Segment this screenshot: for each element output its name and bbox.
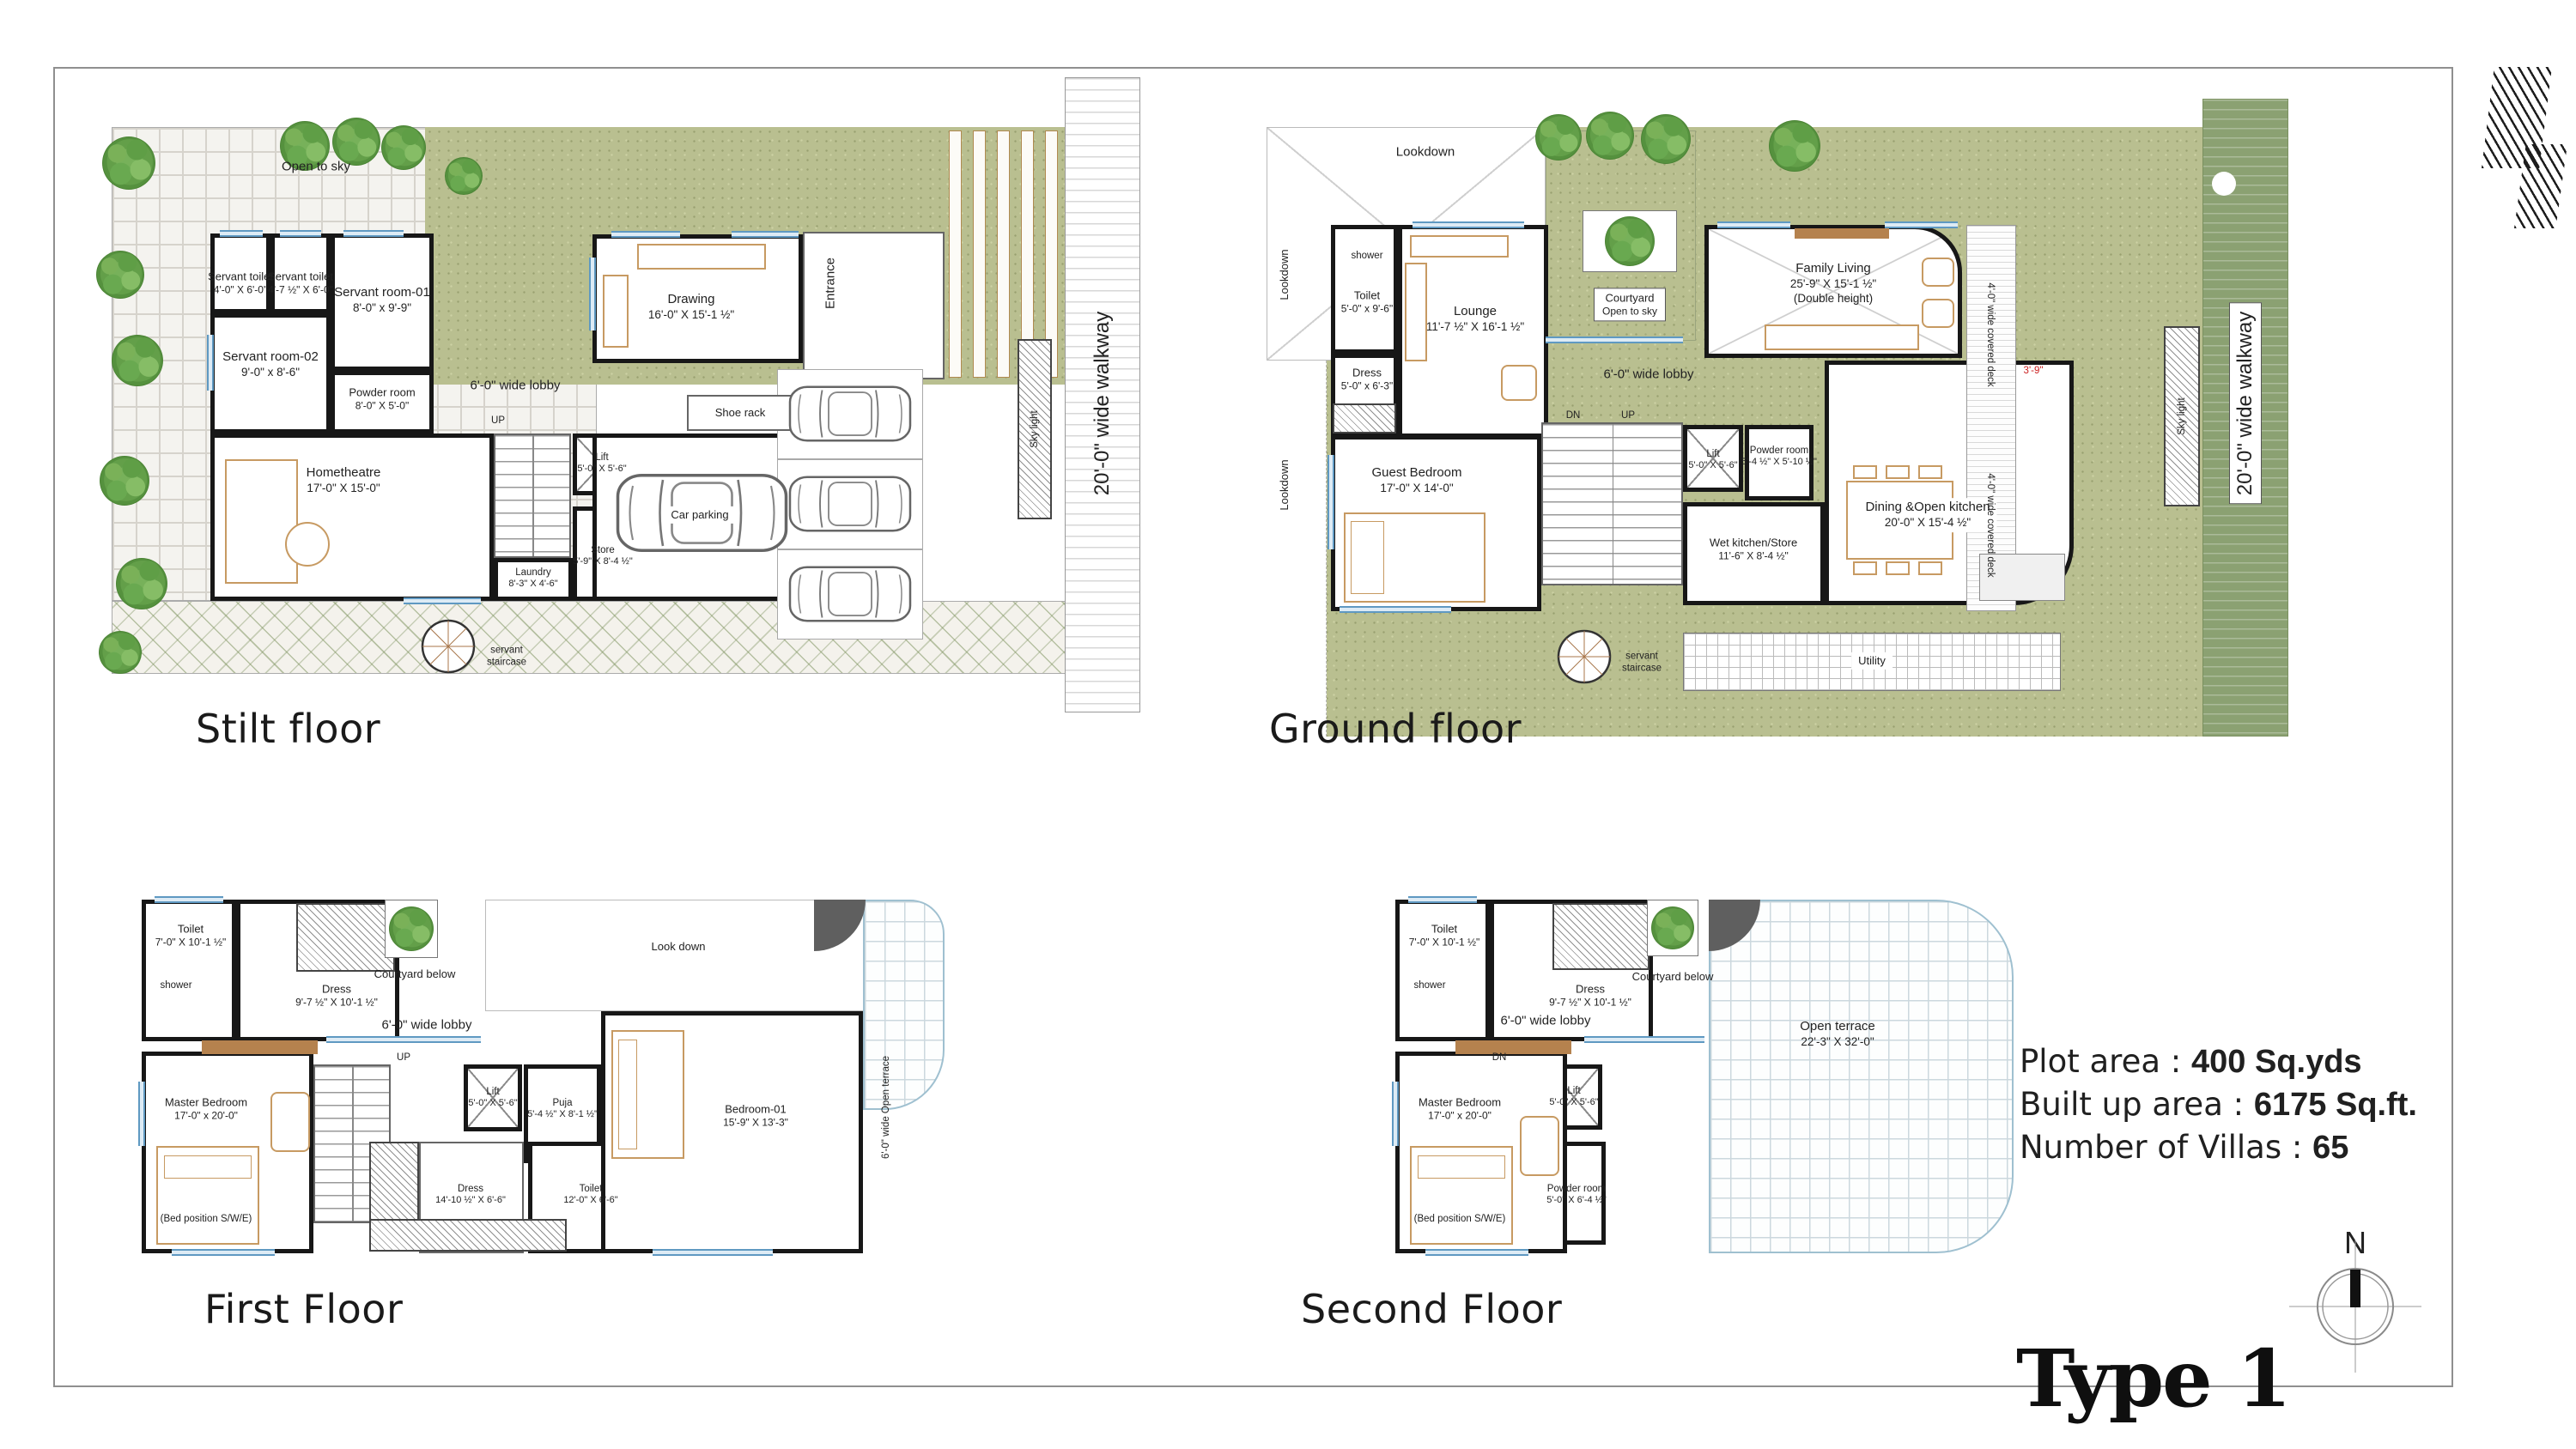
first-floor-title: First Floor	[204, 1286, 403, 1332]
covered-deck-label: 4'-0" wide covered deck	[1984, 473, 1996, 577]
open-terrace-side-label: 6'-0" wide Open terrace	[880, 1056, 892, 1159]
lookdown-label: Lookdown	[1278, 459, 1291, 510]
walkway-label: 20'-0" wide walkway	[2229, 303, 2262, 505]
tree-icon	[96, 251, 144, 299]
compass-icon	[2282, 1234, 2428, 1379]
bed-position-label: (Bed position S/W/E)	[1414, 1213, 1506, 1225]
room-label: Powder room8'-0" X 5'-0"	[349, 385, 415, 412]
lawn-light-dot	[2212, 172, 2236, 196]
stilt-open-to-sky-label: Open to sky	[282, 160, 350, 176]
plot-area-line: Plot area : 400 Sq.yds	[2020, 1040, 2417, 1083]
walkway-label: 20'-0" wide walkway	[1090, 312, 1115, 496]
chair	[1918, 465, 1942, 479]
dn-label: DN	[1492, 1052, 1507, 1064]
first-open-terrace	[863, 900, 945, 1110]
shoe-rack-label: Shoe rack	[715, 406, 766, 420]
window	[589, 258, 596, 330]
first-wardrobe3	[369, 1219, 567, 1252]
window	[207, 335, 214, 391]
lobby-label: 6'-0" wide lobby	[1501, 1014, 1591, 1030]
second-wardrobe	[1552, 903, 1649, 970]
up-label: UP	[397, 1052, 410, 1064]
room-label: Powder room5'-4 ½" X 5'-10 ½"	[1741, 445, 1817, 469]
entrance-label: Entrance	[823, 258, 840, 309]
room-label: Dress9'-7 ½" X 10'-1 ½"	[295, 982, 378, 1009]
builtup-area-value: 6175 Sq.ft.	[2254, 1087, 2417, 1123]
tree-icon	[445, 157, 483, 195]
tree-icon	[332, 118, 380, 166]
room-label: Toilet12'-0" X 6'-6"	[563, 1183, 617, 1207]
second-open-terrace	[1709, 900, 2014, 1253]
car-icon	[786, 380, 914, 447]
room-label: Hometheatre17'-0" X 15'-0"	[307, 465, 381, 496]
sofa	[1765, 324, 1919, 350]
room-label: Dress9'-7 ½" X 10'-1 ½"	[1549, 982, 1631, 1009]
armchair	[1922, 299, 1954, 328]
window	[1340, 606, 1451, 613]
window	[220, 230, 263, 237]
bed	[1344, 512, 1485, 603]
servant-staircase-label: servant staircase	[1608, 651, 1675, 676]
type-label: Type 1	[2016, 1332, 2290, 1425]
sofa	[603, 275, 629, 348]
room-label: Guest Bedroom17'-0" X 14'-0"	[1371, 465, 1461, 496]
spiral-stair-icon	[1557, 629, 1612, 684]
floor-mat	[202, 1040, 318, 1054]
ground-left-margin	[1267, 361, 1327, 737]
window	[155, 896, 223, 903]
shower-label: shower	[1413, 979, 1445, 991]
bed	[1410, 1146, 1513, 1245]
room-label: Servant toilet4'-7 ½" X 6'-0"	[268, 270, 333, 296]
tree-icon	[1769, 120, 1820, 172]
window	[653, 1249, 773, 1256]
project-info-block: Plot area : 400 Sq.yds Built up area : 6…	[2020, 1040, 2417, 1169]
window	[1408, 896, 1477, 903]
courtyard-tree-box	[1583, 210, 1677, 272]
room-label: Dress14'-10 ½" X 6'-6"	[435, 1183, 506, 1207]
tree-icon	[1586, 112, 1634, 160]
room-label: Servant toilet4'-0" X 6'-0"	[208, 270, 273, 296]
sky-light-label: Sky light	[1029, 410, 1041, 447]
car-icon	[786, 470, 914, 537]
lookdown-label: Lookdown	[1278, 249, 1291, 300]
window	[611, 231, 680, 238]
room-label: Bedroom-0115'-9" X 13'-3"	[723, 1102, 788, 1129]
armchair	[270, 1092, 310, 1152]
stilt-floor-title: Stilt floor	[196, 706, 380, 752]
first-wardrobe	[296, 903, 395, 972]
stilt-staircase	[494, 433, 571, 558]
room-label: Servant room-018'-0" x 9'-9"	[334, 285, 430, 316]
bed-position-label: (Bed position S/W/E)	[161, 1213, 252, 1225]
ground-wardrobe	[1333, 403, 1396, 433]
window	[1717, 221, 1790, 228]
builtup-area-line: Built up area : 6175 Sq.ft.	[2020, 1083, 2417, 1126]
window	[172, 1249, 275, 1256]
window	[1392, 1082, 1399, 1146]
second-toilet	[1395, 900, 1490, 1041]
sofa	[637, 244, 766, 270]
tree-icon	[99, 631, 142, 674]
window	[404, 597, 481, 604]
room-label: Toilet7'-0" X 10'-1 ½"	[155, 922, 226, 949]
courtyard-below-label: Courtyard below	[374, 967, 456, 981]
room-label: Dining &Open kitchen20'-0" X 15'-4 ½"	[1858, 498, 1996, 532]
courtyard-label: CourtyardOpen to sky	[1594, 288, 1666, 321]
tv-ledge	[1795, 228, 1889, 239]
courtyard-tree-box	[385, 900, 438, 958]
up-label: UP	[1621, 409, 1635, 421]
tree-icon	[1651, 906, 1694, 949]
tree-icon	[112, 335, 163, 386]
window	[280, 230, 321, 237]
armchair	[1520, 1116, 1559, 1176]
room-label: Lift5'-0" X 5'-6"	[577, 452, 626, 476]
pergola-beam	[997, 130, 1010, 378]
room-label: Lift5'-0" X 5'-6"	[1688, 448, 1737, 472]
villas-count-line: Number of Villas : 65	[2020, 1126, 2417, 1169]
room-label: Open terrace22'-3" X 32'-0"	[1800, 1019, 1875, 1050]
look-down-label: Look down	[652, 940, 706, 954]
shower-label: shower	[160, 979, 191, 991]
room-label: Puja5'-4 ½" X 8'-1 ½"	[527, 1097, 598, 1121]
plot-area-value: 400 Sq.yds	[2191, 1044, 2362, 1080]
tree-icon	[1641, 114, 1691, 164]
courtyard-below-label: Courtyard below	[1632, 970, 1714, 984]
villas-count-value: 65	[2312, 1130, 2348, 1166]
pergola-beam	[949, 130, 962, 378]
courtyard-tree-box	[1647, 900, 1698, 956]
chair	[1853, 465, 1877, 479]
floor-mat	[1455, 1040, 1571, 1054]
tree-icon	[389, 906, 434, 951]
round-table	[285, 522, 330, 567]
window	[1546, 336, 1683, 343]
tree-icon	[381, 125, 426, 170]
room-label: Lift5'-0" X 5'-6"	[1549, 1085, 1598, 1109]
room-label: Servant room-029'-0" x 8'-6"	[222, 349, 319, 380]
room-label: Master Bedroom17'-0" x 20'-0"	[1419, 1095, 1501, 1122]
room-label: Toilet7'-0" X 10'-1 ½"	[1409, 922, 1479, 949]
spiral-stair-icon	[421, 619, 476, 674]
sofa	[225, 459, 298, 584]
bed	[611, 1030, 684, 1159]
lobby-label: 6'-0" wide lobby	[471, 379, 561, 395]
sofa	[1405, 263, 1427, 361]
utility-label: Utility	[1851, 652, 1893, 670]
room-label: Wet kitchen/Store11'-6" X 8'-4 ½"	[1710, 536, 1797, 562]
window	[343, 230, 404, 237]
window	[1413, 221, 1524, 228]
dn-label: DN	[1566, 409, 1581, 421]
chair	[1918, 561, 1942, 575]
window	[1584, 1036, 1704, 1043]
ground-staircase	[1541, 422, 1683, 585]
room-label: Family Living25'-9" X 15'-1 ½"(Double he…	[1790, 261, 1876, 306]
stilt-driveway-pavers	[112, 601, 1069, 674]
ground-floor-title: Ground floor	[1269, 706, 1522, 752]
lobby-label: 6'-0" wide lobby	[1604, 367, 1694, 384]
first-lookdown-area	[485, 900, 867, 1011]
first-toilet	[142, 900, 236, 1041]
covered-deck-label: 4'-0" wide covered deck	[1984, 282, 1996, 386]
window	[1327, 455, 1334, 549]
room-label: Laundry8'-3" X 4'-6"	[508, 567, 557, 591]
room-label: Lounge11'-7 ½" X 16'-1 ½"	[1426, 304, 1524, 335]
room-label: Drawing16'-0" X 15'-1 ½"	[648, 292, 734, 323]
window	[732, 231, 799, 238]
window	[138, 1082, 145, 1146]
tree-icon	[102, 136, 155, 190]
deck-dimension-label: 3'-9"	[2024, 365, 2044, 377]
window	[1425, 1249, 1528, 1256]
up-label: UP	[491, 415, 505, 427]
chair	[1853, 561, 1877, 575]
car-parking-label: Car parking	[664, 506, 735, 524]
sky-light-label: Sky light	[2176, 397, 2188, 434]
tree-icon	[100, 456, 149, 506]
room-label: Dress5'-0" x 6'-3"	[1341, 366, 1393, 392]
window	[1885, 221, 1958, 228]
lookdown-label: Lookdown	[1396, 145, 1455, 161]
bed	[156, 1146, 259, 1245]
second-floor-title: Second Floor	[1301, 1286, 1562, 1332]
servant-staircase-label: servant staircase	[473, 645, 540, 670]
armchair	[1922, 258, 1954, 287]
shower-label: shower	[1351, 250, 1382, 262]
chair	[1886, 561, 1910, 575]
room-label: Store5'-9" X 8'-4 ½"	[573, 544, 633, 568]
pergola-beam	[973, 130, 986, 378]
room-label: Powder room5'-0" X 6'-4 ½"	[1546, 1183, 1607, 1207]
room-label: Toilet5'-0" x 9'-6"	[1341, 288, 1393, 315]
car-icon	[786, 561, 914, 627]
armchair	[1501, 365, 1537, 401]
tree-icon	[1535, 114, 1582, 161]
chair	[1886, 465, 1910, 479]
room-label: Master Bedroom17'-0" x 20'-0"	[165, 1095, 247, 1122]
lobby-label: 6'-0" wide lobby	[382, 1018, 472, 1034]
room-label: Lift5'-0" X 5'-6"	[468, 1086, 517, 1110]
sofa	[1410, 235, 1509, 258]
tree-icon	[116, 558, 167, 609]
tree-icon	[1605, 216, 1655, 266]
window	[326, 1036, 481, 1043]
